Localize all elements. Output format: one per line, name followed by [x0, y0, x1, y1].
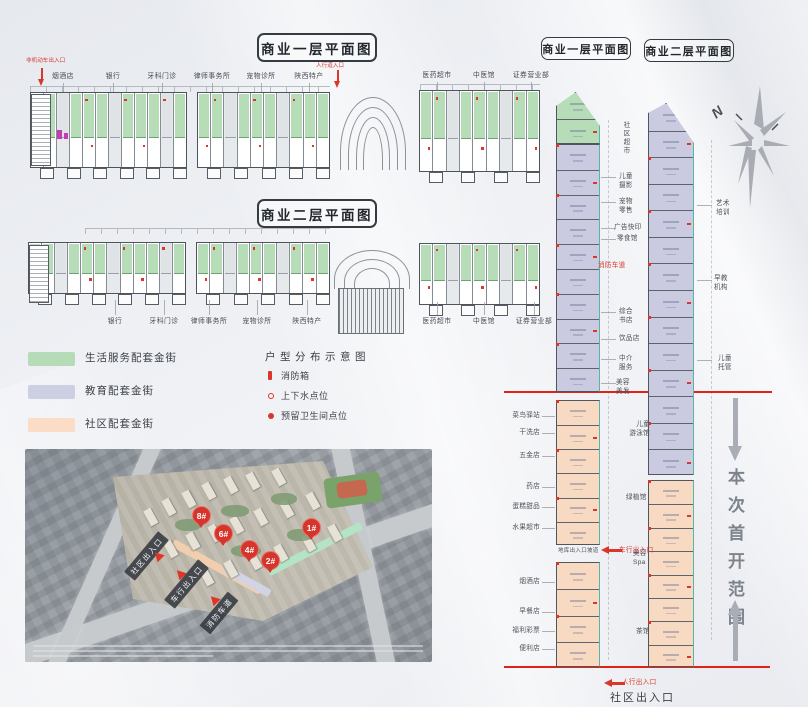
shop-unit [173, 93, 186, 167]
annotation-label: 早教机构 [714, 275, 728, 293]
legend-label-0: 生活服务配套金街 [85, 352, 177, 365]
shop-unit [210, 93, 223, 167]
annotation-label: 地库出入口坡道 [558, 548, 599, 555]
label-leader [601, 228, 616, 229]
annotation-label: 人行出入口 [622, 679, 656, 688]
shop-label-1f-segment: 中医馆 [473, 72, 495, 80]
shop-label-1f: 陕西特产 [294, 73, 323, 81]
annotation-label: 菜鸟驿站 [500, 412, 540, 421]
plan-strip-1f-right [197, 92, 330, 168]
shop-unit [649, 551, 693, 574]
label-leader [542, 507, 555, 508]
shop-unit [486, 91, 499, 171]
title-floor2-strip: 商业二层平面图 [644, 39, 734, 62]
shop-unit [147, 93, 160, 167]
shop-unit [472, 91, 485, 171]
strip-section [556, 144, 600, 392]
bay-extension [316, 168, 330, 179]
label-leader [164, 300, 165, 315]
bay-extension [172, 294, 186, 305]
shop-unit [67, 243, 80, 293]
shop-unit [172, 243, 185, 293]
shop-label-2f: 律师事务所 [191, 318, 227, 326]
shop-unit [649, 528, 693, 551]
amphitheater-plaza [334, 250, 408, 288]
annotation-label: 饮品店 [619, 335, 640, 344]
disclaimer-line [33, 650, 423, 652]
marker-label-2: 预留卫生间点位 [281, 411, 348, 422]
shop-unit [69, 93, 82, 167]
legend-swatch-2 [28, 418, 75, 432]
shop-unit [649, 317, 693, 344]
shop-unit [557, 145, 599, 170]
shop-unit [557, 368, 599, 393]
shop-unit [557, 616, 599, 642]
label-leader [542, 487, 555, 488]
shop-unit [557, 449, 599, 473]
compass-rose-icon: N [698, 84, 794, 212]
shop-unit [649, 343, 693, 370]
label-leader [261, 83, 262, 92]
shop-unit [649, 131, 693, 158]
marker-label-1: 上下水点位 [281, 391, 329, 402]
bay-extension [289, 294, 303, 305]
dimension-chain [711, 140, 712, 640]
annotation-label: 儿童托管 [718, 355, 732, 373]
shop-unit [557, 244, 599, 269]
bay-extension [526, 172, 540, 183]
shop-unit [198, 93, 210, 167]
shop-unit [223, 93, 236, 167]
shop-label-2f-segment: 医药超市 [422, 318, 451, 326]
annotation-label: 车行出入口 [619, 547, 653, 556]
shop-unit [649, 621, 693, 644]
dimension-chain [608, 120, 609, 660]
title-text: 商业二层平面图 [261, 204, 373, 224]
annotation-label: 中介服务 [619, 355, 633, 373]
bay-extension [146, 168, 160, 179]
annotation-label: 社区超市 [620, 121, 629, 155]
plan-segment-2f [419, 243, 540, 305]
plan-strip-2f-left [28, 242, 186, 294]
shop-unit [499, 91, 512, 171]
annotation-label: 消防车道 [598, 262, 626, 271]
shop-unit [486, 244, 499, 304]
shop-label-2f-segment: 中医馆 [473, 318, 495, 326]
label-leader [209, 300, 210, 315]
title-floor2-plan: 商业二层平面图 [257, 199, 377, 228]
shop-unit [459, 244, 472, 304]
strip-section [556, 400, 600, 545]
shop-unit [106, 243, 119, 293]
shop-unit [432, 91, 445, 171]
dimension-line [85, 228, 330, 234]
shop-unit [316, 243, 329, 293]
shop-unit [557, 589, 599, 615]
plan-segment-1f [419, 90, 540, 172]
building-pin-tail [307, 534, 315, 540]
shop-unit [649, 290, 693, 317]
label-leader [212, 83, 213, 92]
shop-unit [134, 93, 147, 167]
label-leader [601, 202, 616, 203]
shop-unit [249, 243, 262, 293]
shop-unit [649, 263, 693, 290]
shop-unit [316, 93, 329, 167]
label-leader [113, 83, 114, 92]
annotation-label: 茶馆 [636, 628, 650, 637]
disclaimer-line [33, 655, 213, 657]
courtyard-green [221, 505, 249, 517]
bay-extension [93, 168, 107, 179]
poster-canvas: 商业一层平面图 商业二层平面图 商业一层平面图 商业二层平面图 非机动车出入口 … [0, 0, 808, 707]
shop-unit [557, 269, 599, 294]
shop-unit [446, 244, 459, 304]
label-leader [542, 433, 555, 434]
label-leader [542, 649, 555, 650]
shop-unit [197, 243, 209, 293]
label-leader [437, 82, 438, 90]
shop-unit [557, 294, 599, 319]
label-leader [115, 300, 116, 315]
shop-unit [237, 93, 250, 167]
shop-unit [276, 93, 289, 167]
shop-unit [432, 244, 445, 304]
annotation-label: 艺术培训 [716, 200, 730, 218]
shop-unit [649, 157, 693, 184]
utility-mark [64, 133, 68, 139]
bay-extension [65, 294, 79, 305]
strip-section [648, 480, 694, 667]
shop-label-1f: 宠物诊所 [246, 73, 275, 81]
building-pin-tail [266, 567, 274, 573]
annotation-label: 零食馆 [617, 235, 638, 244]
label-leader [601, 239, 616, 240]
shop-unit [121, 93, 134, 167]
bay-extension [429, 172, 443, 183]
bay-extension [120, 168, 134, 179]
bay-extension [92, 294, 106, 305]
shop-unit [276, 243, 289, 293]
legend-label-1: 教育配套金街 [85, 385, 154, 398]
shop-unit [649, 481, 693, 504]
shop-unit [526, 244, 539, 304]
shop-unit [557, 93, 599, 119]
label-leader [484, 302, 485, 315]
label-leader [531, 82, 532, 90]
courtyard-green [271, 493, 297, 505]
shop-label-1f-segment: 证券营业部 [513, 72, 549, 80]
title-text: 商业二层平面图 [645, 43, 733, 59]
strip-section [556, 562, 600, 667]
annotation-label: 广告快印 [614, 224, 642, 233]
shop-unit [446, 91, 459, 171]
shop-unit [649, 575, 693, 598]
shop-unit [557, 522, 599, 546]
bay-extension [173, 168, 187, 179]
label-leader [601, 359, 616, 360]
shop-unit [223, 243, 236, 293]
shop-label-2f-segment: 证券营业部 [516, 318, 552, 326]
plan-strip-2f-right [196, 242, 330, 294]
label-leader [257, 300, 258, 315]
shop-unit [649, 210, 693, 237]
bay-extension [145, 294, 159, 305]
label-leader [697, 360, 712, 361]
bay-extension [289, 168, 303, 179]
shop-unit [250, 93, 263, 167]
bay-extension [262, 168, 276, 179]
water-point-icon [268, 393, 274, 399]
shop-unit [159, 243, 172, 293]
shop-unit [649, 104, 693, 131]
shop-unit [557, 219, 599, 244]
shop-unit [420, 91, 432, 171]
legend-swatch-1 [28, 385, 75, 399]
bay-extension [234, 168, 248, 179]
shop-unit [160, 93, 173, 167]
label-leader [437, 302, 438, 315]
bay-extension [118, 294, 132, 305]
annotation-label: 五金店 [500, 452, 540, 461]
shop-label-1f: 律师事务所 [194, 73, 230, 81]
disclaimer-line [33, 645, 423, 647]
bay-extension [234, 294, 248, 305]
bay-extension [429, 305, 443, 316]
annotation-label: 儿童游泳馆 [616, 421, 650, 439]
shop-label-2f: 宠物诊所 [242, 318, 271, 326]
shop-unit [459, 91, 472, 171]
title-floor1-strip: 商业一层平面图 [541, 37, 631, 60]
bay-extension [261, 294, 275, 305]
annotation-label: 福利彩票 [500, 627, 540, 636]
strip-section [648, 103, 694, 475]
shop-unit [649, 370, 693, 397]
label-leader [601, 383, 616, 384]
marker-label-0: 消防箱 [281, 371, 310, 382]
bay-extension [67, 168, 81, 179]
shop-unit [557, 119, 599, 145]
marker-legend-title: 户型分布示意图 [265, 351, 370, 364]
label-leader [542, 612, 555, 613]
shop-unit [289, 93, 302, 167]
title-floor1-plan: 商业一层平面图 [257, 33, 377, 62]
shop-unit [263, 93, 276, 167]
shop-unit [557, 401, 599, 425]
annotation-label: 水果超市 [500, 524, 540, 533]
shop-unit [649, 645, 693, 668]
legend-label-2: 社区配套金街 [85, 418, 154, 431]
entrance-label-pedestrian: 人行道入口 [316, 63, 344, 70]
shop-label-2f: 牙科门诊 [149, 318, 178, 326]
shop-label-2f: 银行 [108, 318, 123, 326]
shop-unit [649, 184, 693, 211]
shop-label-1f: 银行 [106, 73, 121, 81]
bay-extension [526, 305, 540, 316]
building-pin-tail [245, 556, 253, 562]
label-leader [601, 312, 616, 313]
shop-unit [649, 396, 693, 423]
shop-label-1f: 牙科门诊 [147, 73, 176, 81]
shop-label-1f: 烟酒店 [52, 73, 74, 81]
shop-unit [262, 243, 275, 293]
shop-unit [236, 243, 249, 293]
building-pin-tail [219, 540, 227, 546]
annotation-label: 烟酒店 [500, 578, 540, 587]
shop-unit [82, 93, 95, 167]
shop-label-1f-segment: 医药超市 [422, 72, 451, 80]
annotation-label: 绿植馆 [626, 494, 647, 503]
shop-unit [209, 243, 222, 293]
label-leader [309, 83, 310, 92]
annotation-label: 药店 [500, 483, 540, 492]
label-leader [542, 456, 555, 457]
annotation-label: 美容美发 [616, 379, 630, 397]
toilet-point-icon [268, 413, 274, 419]
grandstand-steps [338, 288, 404, 334]
shop-unit [557, 319, 599, 344]
shop-unit [557, 498, 599, 522]
label-leader [542, 528, 555, 529]
label-leader [542, 582, 555, 583]
shop-unit [133, 243, 146, 293]
shop-unit [499, 244, 512, 304]
annotation-label: 早餐店 [500, 608, 540, 617]
strip-section [556, 92, 600, 144]
loading-dock [29, 245, 49, 303]
shop-unit [80, 243, 93, 293]
label-leader [542, 631, 555, 632]
label-leader [534, 302, 535, 315]
aerial-rendering: 8#6#4#2#1#社区出入口车行出入口消防车道 [25, 449, 432, 662]
shop-unit [420, 244, 432, 304]
label-leader [697, 205, 712, 206]
label-leader [601, 339, 616, 340]
annotation-label: 便利店 [500, 645, 540, 654]
shop-unit [649, 449, 693, 476]
building-pin-tail [197, 522, 205, 528]
shop-unit [120, 243, 133, 293]
bay-extension [207, 168, 221, 179]
loading-dock [31, 94, 51, 166]
entrance-label-nonmotor: 非机动车出入口 [26, 58, 65, 65]
shop-unit [557, 343, 599, 368]
title-text: 商业一层平面图 [261, 38, 373, 58]
bay-extension [461, 172, 475, 183]
shop-unit [512, 244, 525, 304]
legend-swatch-0 [28, 352, 75, 366]
shop-unit [649, 237, 693, 264]
shop-label-2f: 陕西特产 [292, 318, 321, 326]
annotation-label: 蛋糕甜品 [500, 503, 540, 512]
shop-unit [649, 598, 693, 621]
annotation-label: 综合书店 [619, 308, 633, 326]
shop-unit [557, 425, 599, 449]
label-leader [484, 82, 485, 90]
shop-unit [649, 504, 693, 527]
floor1-strip [556, 92, 600, 667]
shop-unit [302, 243, 315, 293]
shop-unit [93, 243, 106, 293]
shop-unit [95, 93, 108, 167]
title-text: 商业一层平面图 [542, 41, 630, 57]
plan-strip-1f-left [30, 92, 187, 168]
shop-unit [289, 243, 302, 293]
annotation-label: 宠物零售 [619, 198, 633, 216]
label-leader [307, 300, 308, 315]
label-leader [162, 83, 163, 92]
shop-unit [557, 473, 599, 497]
label-leader [542, 416, 555, 417]
shop-unit [557, 563, 599, 589]
community-exit-label: 社区出入口 [610, 692, 675, 706]
shop-unit [512, 91, 525, 171]
shop-unit [303, 93, 316, 167]
shop-unit [54, 243, 67, 293]
first-open-scope-line-top [504, 391, 772, 393]
utility-mark [57, 130, 62, 139]
shop-unit [557, 195, 599, 220]
bay-extension [40, 168, 54, 179]
shop-unit [557, 642, 599, 668]
firebox-icon [268, 371, 272, 380]
shop-unit [649, 423, 693, 450]
annotation-label: 干洗店 [500, 429, 540, 438]
label-leader [63, 83, 64, 92]
shop-unit [146, 243, 159, 293]
label-leader [697, 280, 712, 281]
bay-extension [461, 305, 475, 316]
shop-unit [108, 93, 121, 167]
shop-unit [472, 244, 485, 304]
shop-unit [526, 91, 539, 171]
label-leader [601, 177, 616, 178]
first-open-scope-line-bottom [504, 666, 770, 668]
amphitheater-plaza [340, 97, 404, 169]
bay-extension [494, 305, 508, 316]
strip-gap [556, 392, 600, 400]
bay-extension [494, 172, 508, 183]
annotation-label: 儿童摄影 [619, 173, 633, 191]
shop-unit [557, 170, 599, 195]
floor2-strip [648, 103, 694, 667]
bay-extension [316, 294, 330, 305]
